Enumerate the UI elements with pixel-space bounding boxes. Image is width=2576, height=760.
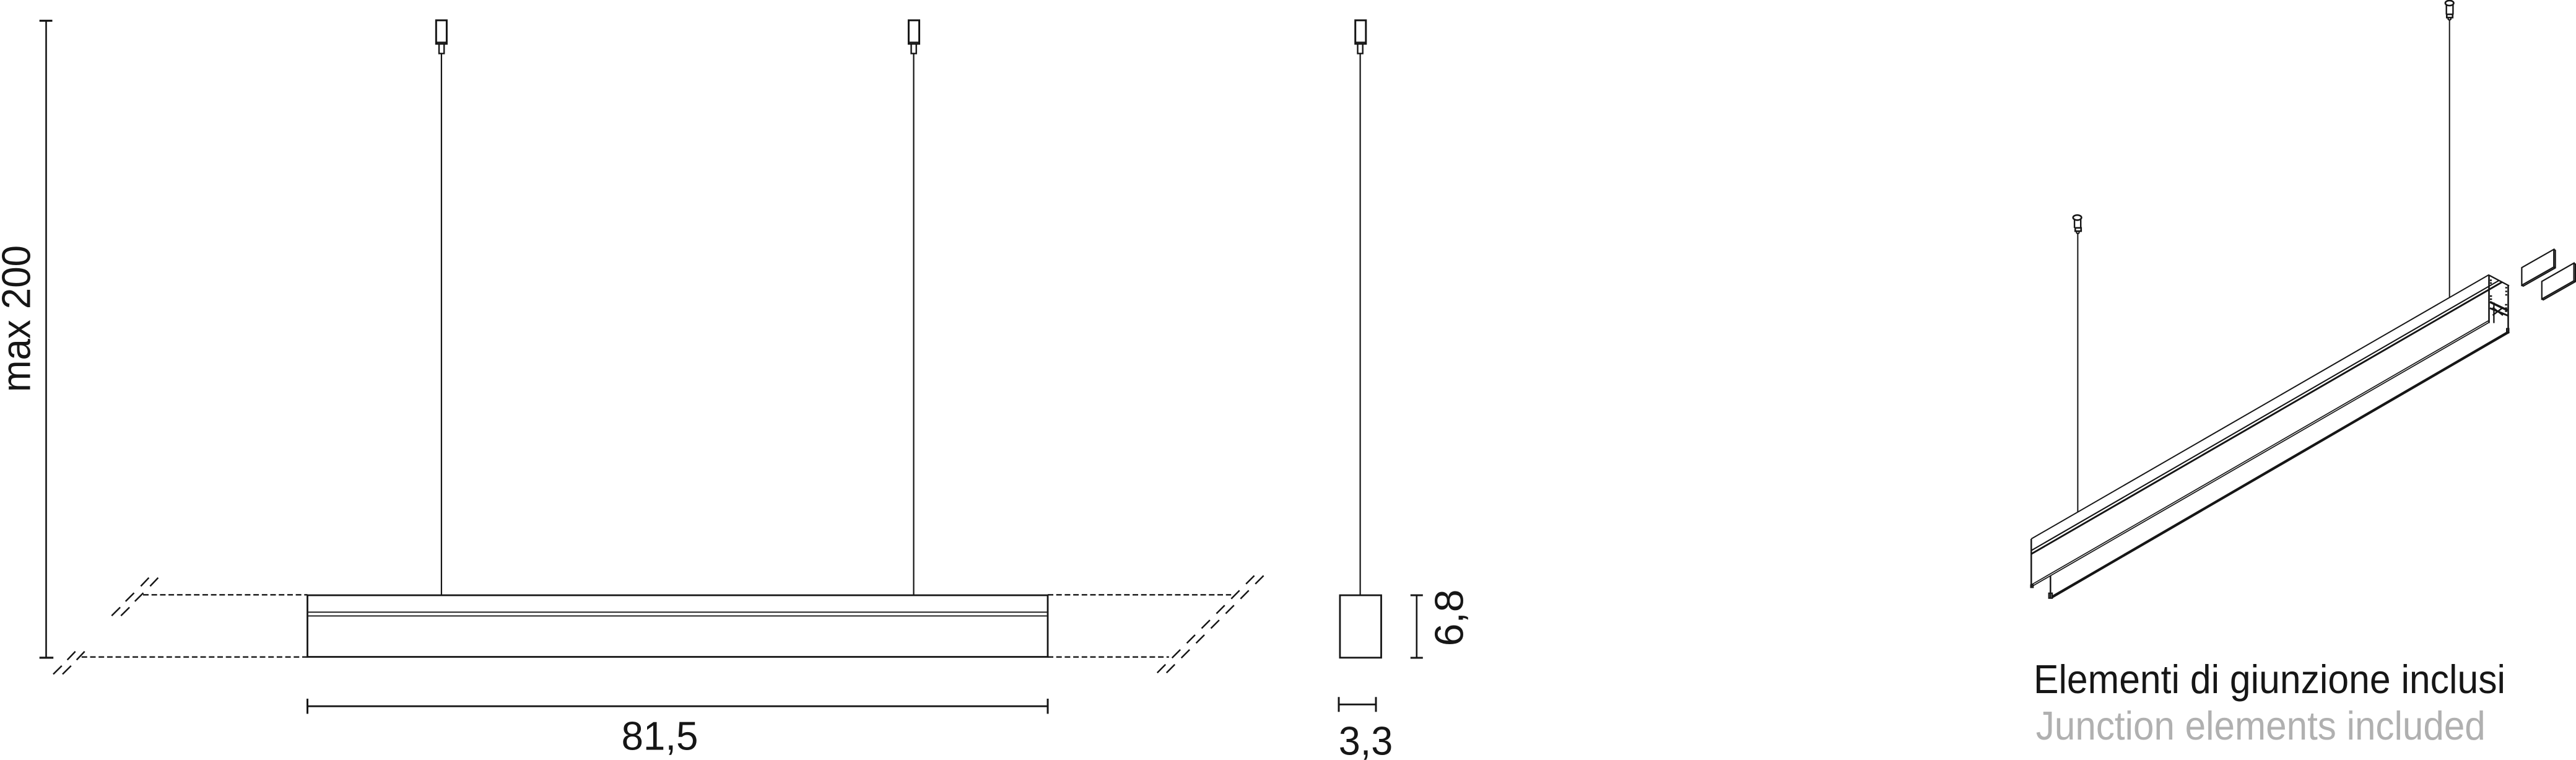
svg-text:max 200: max 200	[0, 245, 39, 392]
svg-text:6,8: 6,8	[1427, 589, 1472, 646]
svg-text:3,3: 3,3	[1339, 719, 1393, 760]
svg-text:81,5: 81,5	[622, 714, 698, 759]
svg-text:Elementi di giunzione inclusi: Elementi di giunzione inclusi	[2034, 657, 2505, 702]
svg-text:Junction elements included: Junction elements included	[2036, 703, 2486, 748]
